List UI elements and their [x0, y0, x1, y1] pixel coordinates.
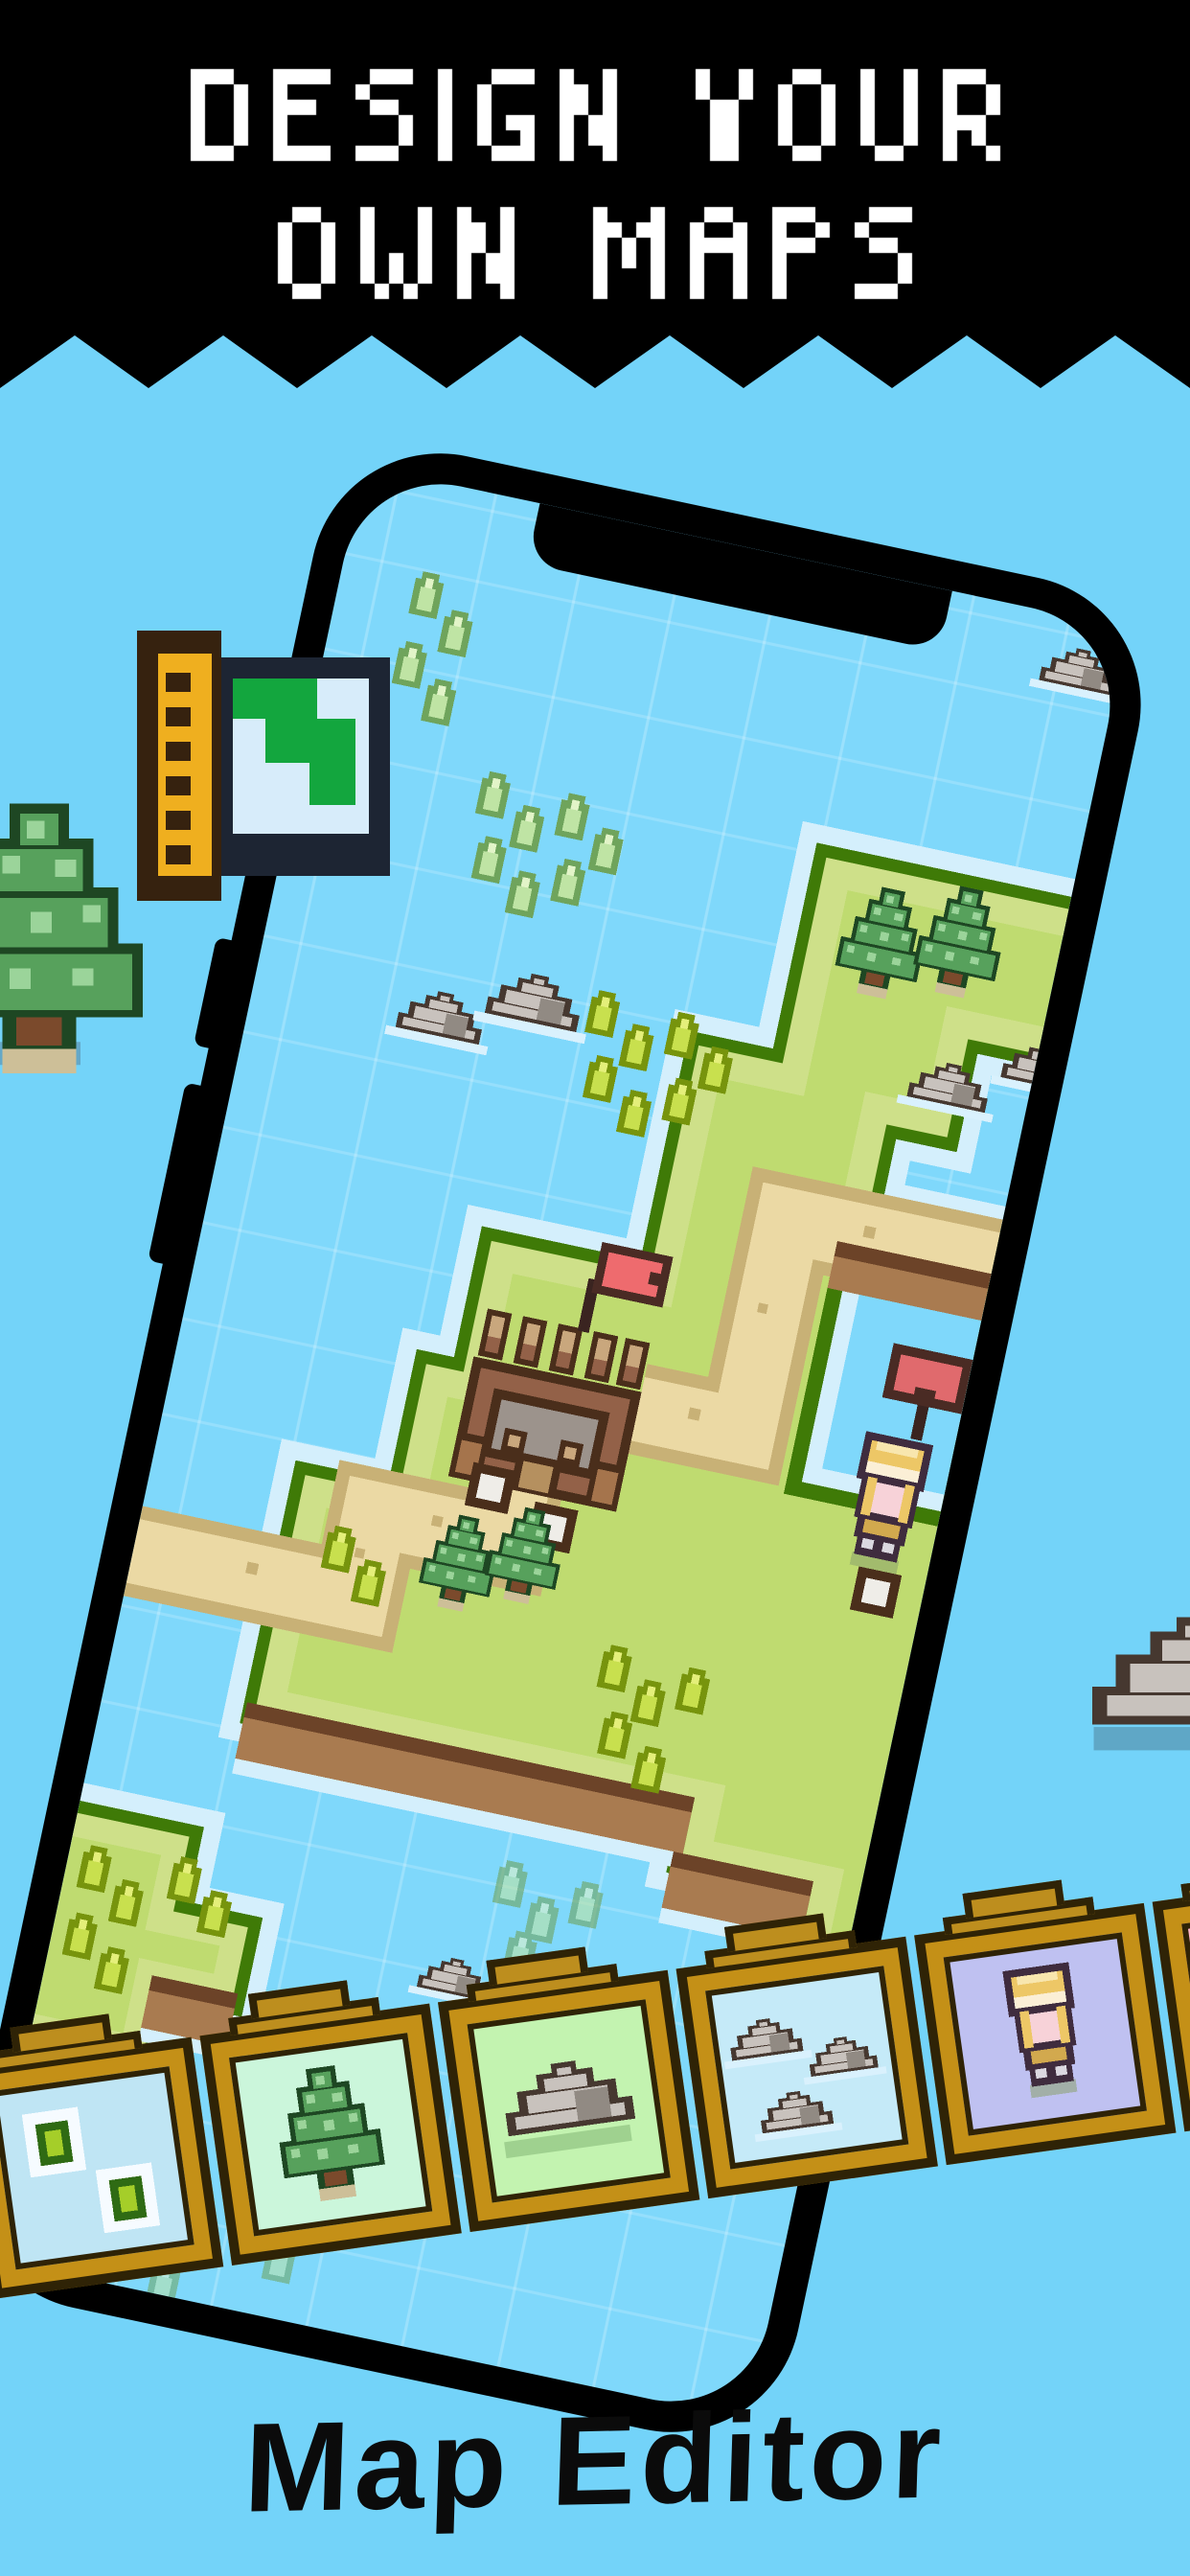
water-tuft-sprites [0, 2073, 188, 2264]
rock-cluster-icon [712, 1972, 903, 2163]
banner [0, 0, 1190, 395]
palette-tile-tree[interactable] [199, 2004, 461, 2265]
pine-tree-icon [0, 803, 155, 1081]
map-with-ruler-icon [137, 631, 390, 903]
stone-paver-icon [850, 1566, 902, 1618]
rock-icon [1081, 1602, 1190, 1756]
map-border [212, 657, 390, 876]
palette-tile-character[interactable] [914, 1903, 1176, 2165]
stone-paver-icon [465, 1462, 516, 1514]
character-icon [950, 1939, 1140, 2129]
caption-map-editor: Map Editor [0, 2376, 1190, 2545]
palette-tile-rock[interactable] [438, 1970, 699, 2232]
map-paper [233, 678, 369, 834]
ruler-plank [137, 631, 221, 901]
palette-tile-clouds[interactable] [676, 1937, 938, 2198]
app-store-screenshot: Map Editor [0, 0, 1190, 2576]
rock-icon [473, 2006, 664, 2196]
volume-down-button [148, 1082, 202, 1264]
pine-tree-icon [236, 2039, 426, 2230]
banner-pixel-text [0, 48, 1190, 335]
volume-up-button [194, 937, 234, 1048]
palette-tile-water[interactable] [0, 2037, 223, 2299]
